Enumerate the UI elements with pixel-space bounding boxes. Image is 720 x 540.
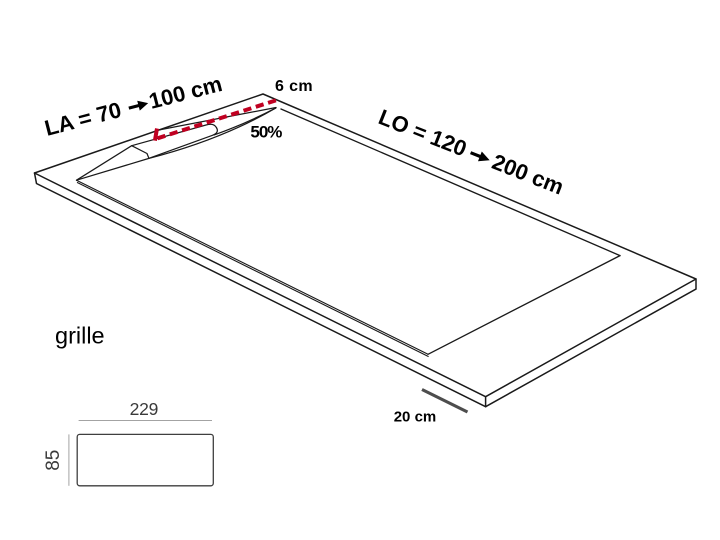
svg-text:200 cm: 200 cm [489, 149, 568, 200]
svg-text:229: 229 [130, 399, 159, 419]
svg-text:20 cm: 20 cm [394, 409, 437, 426]
svg-text:LA = 70: LA = 70 [42, 97, 124, 141]
svg-text:50%: 50% [250, 123, 282, 142]
svg-text:100 cm: 100 cm [146, 71, 225, 114]
svg-text:85: 85 [43, 450, 64, 471]
svg-text:grille: grille [55, 323, 105, 349]
svg-text:6 cm: 6 cm [275, 78, 313, 95]
